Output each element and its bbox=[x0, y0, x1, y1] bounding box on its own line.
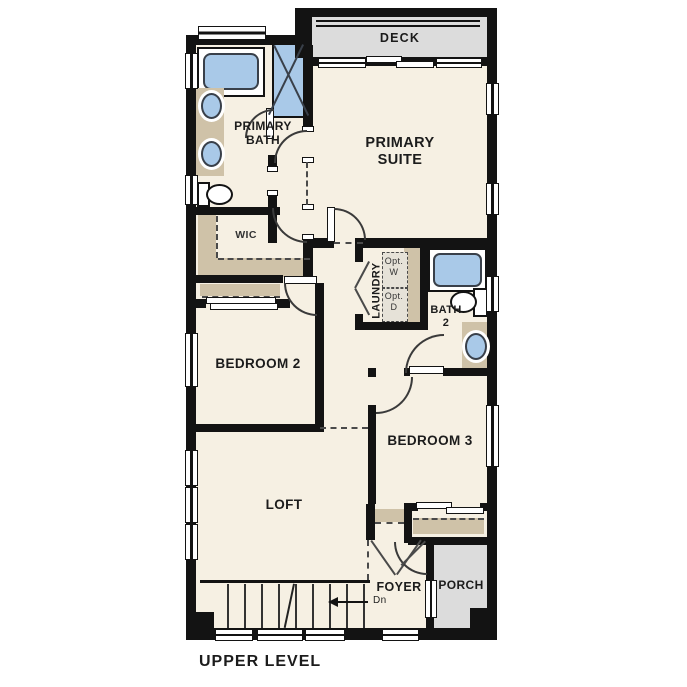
wall-laundry-south bbox=[355, 322, 428, 330]
stair-down-arrow bbox=[328, 597, 338, 607]
wall-bath-suite bbox=[303, 45, 313, 130]
bathtub2-basin bbox=[433, 253, 482, 287]
opt-dryer-label: Opt. D bbox=[382, 291, 406, 313]
bedroom2-closet-stub-left bbox=[196, 299, 206, 308]
deck-railing-line bbox=[316, 25, 480, 27]
bedroom2-closet-shelf bbox=[200, 284, 280, 296]
door-jamb bbox=[267, 190, 278, 196]
opt-dryer-line1: Opt. bbox=[385, 291, 404, 301]
window bbox=[305, 629, 345, 641]
foyer-closet-shelf bbox=[375, 509, 404, 522]
bedroom3-label: BEDROOM 3 bbox=[374, 433, 486, 449]
primary-bath-line1: PRIMARY bbox=[234, 119, 292, 133]
stair-arrow-shaft bbox=[338, 601, 368, 603]
wic-shelf-dash bbox=[218, 258, 310, 260]
cased-opening bbox=[306, 162, 308, 205]
foyer-label: FOYER bbox=[372, 580, 426, 595]
stair-down-label: Dn bbox=[373, 595, 397, 607]
wall-porch-west-a bbox=[426, 545, 434, 580]
wic-shelf-left bbox=[198, 215, 216, 258]
primary-suite-line2: SUITE bbox=[378, 152, 423, 168]
opt-washer-label: Opt. W bbox=[382, 256, 406, 278]
window bbox=[185, 450, 198, 486]
page-title: UPPER LEVEL bbox=[199, 652, 399, 671]
primary-suite-label: PRIMARY SUITE bbox=[340, 135, 460, 170]
window-box-tub bbox=[198, 26, 266, 40]
foyer-opening bbox=[367, 540, 369, 580]
wall-deck-top bbox=[304, 8, 497, 17]
window bbox=[185, 524, 198, 560]
sink bbox=[201, 93, 222, 119]
opt-washer-line1: Opt. bbox=[385, 256, 404, 266]
porch-label: PORCH bbox=[435, 578, 487, 592]
wall-toilet-nook-bottom bbox=[186, 207, 280, 215]
bath2-line1: BATH bbox=[430, 304, 461, 316]
window bbox=[318, 58, 366, 68]
window bbox=[486, 405, 499, 467]
bedroom3-closet-dash bbox=[413, 518, 484, 520]
primary-bath-line2: BATH bbox=[246, 133, 280, 147]
porch-column bbox=[470, 608, 490, 628]
opt-washer-line2: W bbox=[390, 267, 399, 277]
toilet-bowl bbox=[206, 184, 233, 205]
door-jamb bbox=[267, 166, 278, 172]
foyer-closet-dash bbox=[375, 522, 404, 524]
bedroom2-label: BEDROOM 2 bbox=[200, 356, 316, 372]
bathtub-basin bbox=[203, 53, 259, 90]
bath2-line2: 2 bbox=[443, 317, 450, 329]
closet-sliding-door bbox=[446, 507, 484, 514]
window bbox=[486, 276, 499, 312]
floor-plan-upper-level: DECK PRIMARY BATH PRIMARY SUITE WIC LAUN… bbox=[0, 0, 687, 687]
wall-bedroom3-west-b bbox=[368, 405, 376, 504]
opt-dryer-line2: D bbox=[391, 302, 398, 312]
primary-suite-line1: PRIMARY bbox=[365, 135, 434, 151]
window bbox=[382, 629, 419, 641]
wall-foyer-closet-west bbox=[366, 504, 375, 540]
primary-bath-label: PRIMARY BATH bbox=[214, 119, 312, 148]
wall-bath2-south-b bbox=[443, 368, 497, 376]
window bbox=[486, 183, 499, 215]
window bbox=[185, 175, 198, 205]
bedroom2-closet-stub-right bbox=[276, 299, 290, 308]
closet-sliding-door bbox=[210, 303, 278, 310]
window bbox=[185, 487, 198, 523]
bath2-label: BATH 2 bbox=[424, 304, 468, 330]
loft-opening bbox=[320, 427, 368, 429]
window bbox=[436, 58, 482, 68]
loft-label: LOFT bbox=[250, 497, 318, 513]
wic-label: WIC bbox=[226, 229, 266, 242]
bedroom3-closet-shelf bbox=[413, 518, 484, 534]
window bbox=[185, 333, 198, 387]
wall-porch-west-b bbox=[426, 616, 434, 630]
deck-label: DECK bbox=[350, 31, 450, 46]
sliding-door-panel bbox=[396, 61, 434, 68]
window bbox=[486, 83, 499, 115]
wall-suite-south-b bbox=[363, 238, 497, 248]
wall-wic-bottom bbox=[186, 275, 283, 283]
window bbox=[215, 629, 253, 641]
wall-bedroom3-west-a bbox=[368, 368, 376, 377]
window bbox=[257, 629, 303, 641]
window bbox=[185, 53, 198, 89]
deck-railing-line bbox=[316, 20, 480, 22]
wic-shelf-dash bbox=[216, 216, 218, 258]
suite-door-opening bbox=[334, 242, 363, 244]
wall-stair-corner bbox=[196, 612, 214, 628]
wall-loft-top bbox=[196, 424, 320, 432]
stair-stringer bbox=[200, 580, 370, 583]
sink bbox=[465, 333, 487, 360]
